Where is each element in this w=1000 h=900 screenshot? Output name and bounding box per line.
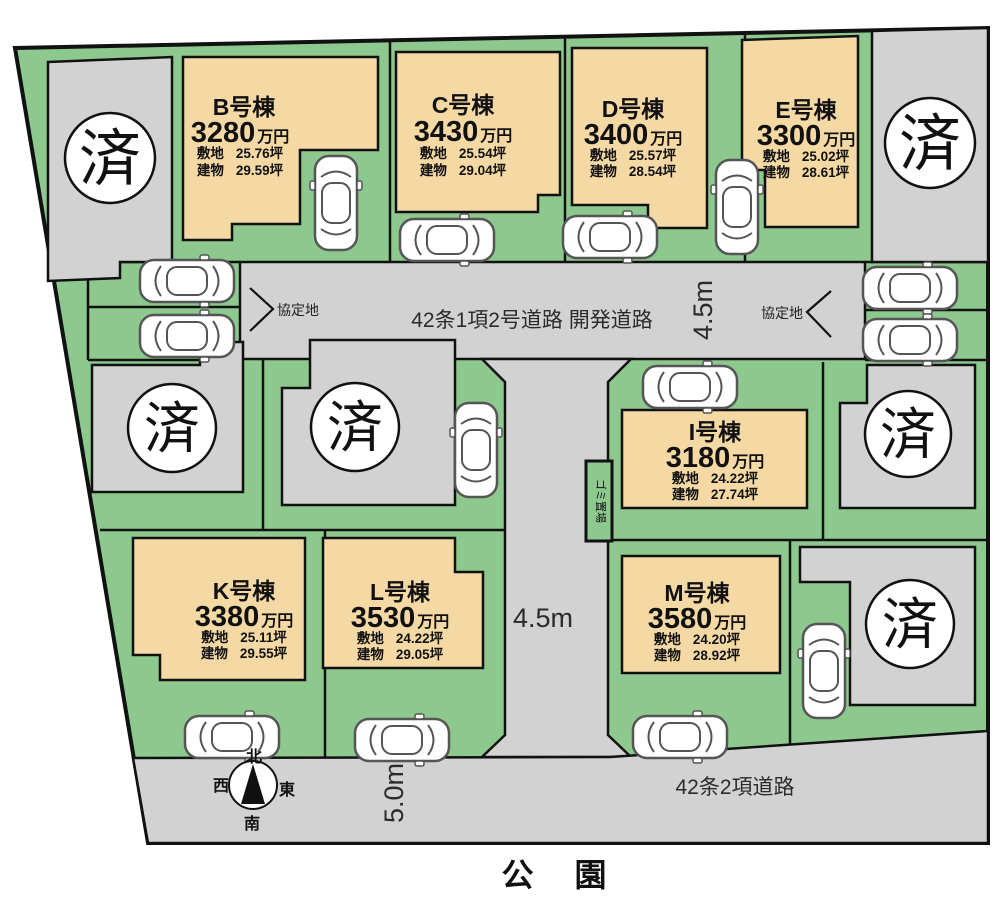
lot-land-spec: 敷地25.54坪	[420, 145, 507, 161]
lot-building-spec: 建物27.74坪	[671, 486, 759, 502]
car-icon	[310, 156, 362, 250]
lot-building-spec: 建物28.92坪	[653, 647, 741, 663]
north-road-width-label: 4.5m	[688, 280, 718, 340]
svg-text:済: 済	[880, 403, 936, 466]
center-road	[482, 359, 631, 757]
compass-south-label: 南	[244, 814, 260, 833]
car-icon	[185, 711, 279, 763]
south-road-label: 42条2項道路	[675, 776, 794, 799]
lot-land-spec: 敷地25.02坪	[763, 148, 850, 164]
lot-building-spec: 建物29.04坪	[419, 162, 507, 178]
lot-land-spec: 敷地24.22坪	[672, 470, 759, 486]
car-icon	[863, 262, 957, 314]
lot-land-spec: 敷地25.76坪	[197, 145, 284, 161]
lot-building-spec: 建物29.05坪	[356, 646, 444, 662]
svg-text:済: 済	[327, 396, 383, 459]
sold-stamp: 済	[866, 580, 954, 668]
sold-stamp: 済	[65, 113, 155, 203]
svg-text:済: 済	[882, 593, 938, 656]
lot-land-spec: 敷地25.11坪	[201, 629, 287, 645]
lot-building-spec: 建物29.55坪	[200, 645, 288, 661]
car-icon	[643, 361, 737, 413]
compass-north-label: 北	[246, 748, 262, 766]
car-icon	[400, 214, 494, 266]
lot-name: C号棟	[432, 92, 496, 118]
compass-west-label: 西	[213, 777, 229, 795]
svg-text:済: 済	[144, 397, 200, 460]
agreement-land-label: 協定地	[277, 302, 319, 318]
car-icon	[711, 160, 763, 254]
svg-text:済: 済	[899, 110, 961, 179]
agreement-land-label: 協定地	[761, 305, 803, 321]
svg-text:済: 済	[79, 125, 141, 194]
north-road-label: 42条1項2号道路 開発道路	[411, 309, 653, 332]
car-icon	[140, 255, 234, 307]
compass-east-label: 東	[279, 780, 295, 799]
park-label: 公 園	[502, 857, 623, 893]
lot-building-spec: 建物28.61坪	[762, 164, 850, 180]
garbage-station: ゴミ置場	[586, 461, 612, 541]
car-icon	[563, 211, 657, 263]
sold-stamp: 済	[311, 383, 399, 471]
car-icon	[633, 711, 727, 763]
center-road-width-label: 4.5m	[513, 603, 573, 633]
car-icon	[450, 403, 502, 497]
lot-building-spec: 建物28.54坪	[589, 163, 677, 179]
lot-land-spec: 敷地24.22坪	[357, 630, 444, 646]
lot-land-spec: 敷地25.57坪	[590, 147, 677, 163]
garbage-station-label: ゴミ置場	[594, 479, 608, 523]
car-icon	[140, 310, 234, 362]
car-icon	[863, 314, 957, 366]
site-plan-map: ゴミ置場 済 済 済 済	[0, 0, 1000, 900]
car-icon	[355, 714, 449, 766]
site-plan-page: ゴミ置場 済 済 済 済	[0, 0, 1000, 900]
lot-building-spec: 建物29.59坪	[196, 162, 284, 178]
sold-stamp: 済	[865, 391, 951, 477]
sold-stamp: 済	[128, 384, 216, 472]
sold-stamp: 済	[885, 98, 975, 188]
lot-land-spec: 敷地24.20坪	[654, 631, 741, 647]
car-icon	[798, 624, 850, 718]
south-road-width-label: 5.0m	[379, 763, 409, 823]
